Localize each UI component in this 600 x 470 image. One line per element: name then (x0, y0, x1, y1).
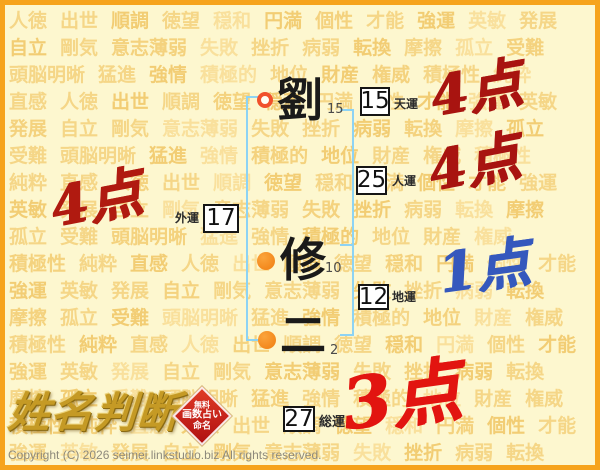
stroke-count-surname: 15 (327, 103, 344, 116)
stamp-text: 無料 画数占い 命名 (171, 400, 233, 431)
fortune-label-tenun: 天運 (394, 98, 418, 111)
stamp-line-2: 画数占い (171, 410, 233, 422)
filled-circle-icon (258, 331, 276, 349)
score-souun: 3点 (338, 354, 465, 440)
fortune-box-souun: 27 (283, 406, 315, 432)
score-jinun: 4点 (424, 128, 524, 198)
gaiun-bracket (246, 96, 259, 341)
fortune-box-gaiun: 17 (203, 204, 239, 233)
stamp-line-3: 命名 (171, 421, 233, 431)
fortune-label-gaiun: 外運 (175, 212, 199, 225)
fortune-label-chiun: 地運 (392, 291, 416, 304)
site-logo[interactable]: 姓名判断 (6, 390, 181, 436)
name-char-given-1: 修 (280, 236, 326, 284)
jinun-chiun-bracket (340, 109, 354, 336)
hollow-circle-icon (257, 92, 273, 108)
fortune-box-jinun: 25 (356, 166, 387, 195)
score-chiun: 1点 (435, 234, 533, 300)
fortune-label-souun: 総運 (319, 416, 345, 429)
stroke-count-given-1: 10 (325, 262, 342, 275)
seimei-result-page: 人徳出世順調徳望穏和円満個性才能強運英敏発展自立剛気意志薄弱失敗挫折病弱転換摩擦… (0, 0, 600, 470)
bracket-middle-tick (340, 244, 354, 246)
score-tenun: 4点 (426, 54, 526, 123)
fortune-box-chiun: 12 (358, 284, 389, 310)
stroke-count-given-2: 2 (330, 344, 338, 357)
filled-circle-icon (257, 252, 275, 270)
name-char-surname: 劉 (277, 76, 323, 124)
fortune-box-tenun: 15 (360, 87, 390, 116)
stamp-line-1: 無料 (171, 400, 233, 409)
copyright-text: Copyright (C) 2026 seimei.linkstudio.biz… (8, 448, 321, 462)
score-gaiun: 4点 (46, 164, 146, 234)
fortune-label-jinun: 人運 (392, 175, 416, 188)
name-char-given-2: 二 (280, 311, 326, 359)
